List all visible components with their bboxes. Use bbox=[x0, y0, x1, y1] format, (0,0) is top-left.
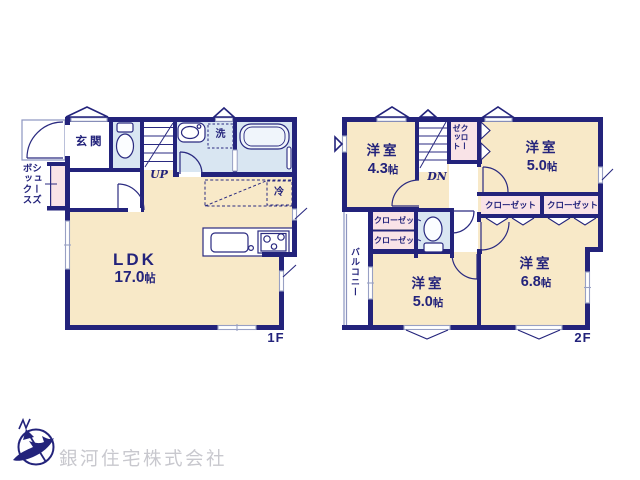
closet-m1-label: クローゼット bbox=[374, 217, 416, 225]
bath-rail bbox=[287, 147, 291, 169]
room-ldk-name: LDK bbox=[95, 251, 175, 268]
company-watermark: 銀河住宅株式会社 bbox=[59, 450, 227, 469]
room-b-size: 5.0帖 bbox=[510, 159, 574, 174]
room-c-size: 5.0帖 bbox=[396, 295, 460, 310]
room-b-name: 洋室 bbox=[512, 141, 572, 155]
floor1-label: 1F bbox=[264, 331, 288, 344]
closet-b1-label: クローゼット bbox=[483, 201, 538, 210]
floor2-label: 2F bbox=[571, 331, 595, 344]
room-ldk-size: 17.0帖 bbox=[93, 270, 177, 286]
toilet-1f bbox=[117, 123, 134, 158]
room-d-size: 6.8帖 bbox=[504, 275, 568, 290]
room-c-name: 洋室 bbox=[398, 277, 458, 291]
floor2-vent bbox=[602, 169, 613, 180]
washbasin bbox=[178, 123, 205, 142]
fridge-label: 冷 bbox=[271, 188, 287, 198]
room-d-name: 洋室 bbox=[506, 257, 566, 271]
stairs-up-label: UP bbox=[146, 169, 172, 180]
balcony-label: バルコニー bbox=[350, 247, 359, 303]
closet-b2-label: クローゼット bbox=[545, 201, 600, 210]
floorplan-page: 玄関 UP 洗 冷 シューズ ボックス LDK 17.0帖 1F 洋室 4.3帖… bbox=[0, 0, 640, 480]
hall-closet-label: クロー ゼット bbox=[452, 124, 468, 162]
room-a-name: 洋室 bbox=[353, 144, 413, 158]
porch bbox=[22, 120, 65, 160]
bath-sliding-door bbox=[233, 150, 238, 171]
shoebox-label: シューズ ボックス bbox=[21, 163, 40, 213]
laundry-label: 洗 bbox=[213, 130, 228, 140]
floor1-gables bbox=[66, 107, 234, 117]
room-a-size: 4.3帖 bbox=[351, 162, 415, 177]
kitchen-sink bbox=[211, 233, 248, 252]
toilet-2f bbox=[424, 217, 443, 252]
floor1-fills bbox=[50, 119, 295, 325]
closet-m2-label: クローゼット bbox=[374, 237, 416, 245]
room-entrance-label: 玄関 bbox=[70, 137, 110, 149]
stairs-down-label: DN bbox=[424, 171, 450, 182]
bathtub bbox=[240, 124, 289, 149]
floorplan-graphics bbox=[0, 0, 640, 480]
kitchen-counter bbox=[203, 228, 295, 256]
compass-north-icon bbox=[13, 419, 54, 465]
